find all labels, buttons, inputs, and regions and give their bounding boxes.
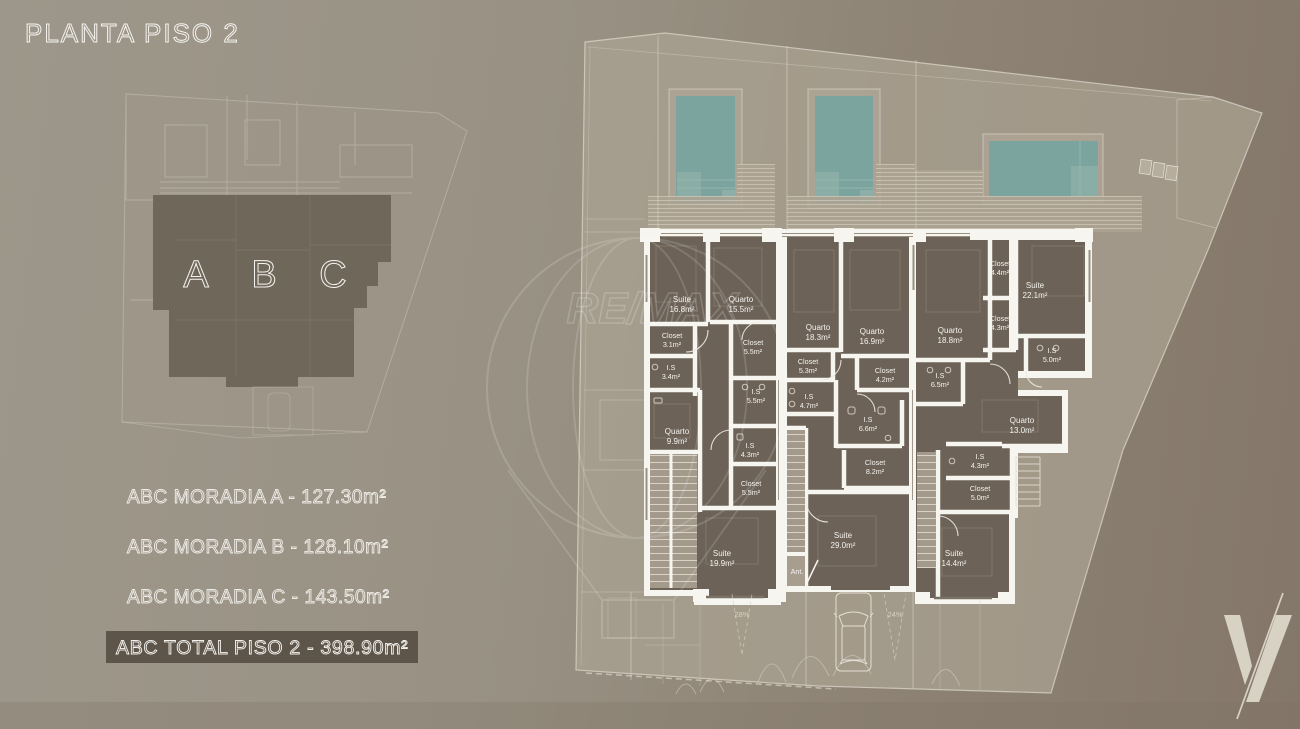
svg-text:I.S: I.S — [752, 387, 761, 396]
svg-text:4.7m²: 4.7m² — [800, 401, 819, 410]
svg-text:Quarto: Quarto — [806, 323, 831, 332]
svg-text:9.9m²: 9.9m² — [667, 437, 688, 446]
svg-text:4.4m²: 4.4m² — [991, 268, 1010, 277]
svg-text:24%: 24% — [887, 610, 902, 619]
svg-text:A: A — [183, 254, 209, 296]
svg-text:6.5m²: 6.5m² — [931, 380, 950, 389]
svg-text:4.3m²: 4.3m² — [741, 450, 760, 459]
svg-text:C: C — [319, 254, 346, 296]
svg-text:I.S: I.S — [746, 441, 755, 450]
svg-text:Quarto: Quarto — [860, 327, 885, 336]
svg-text:18.3m²: 18.3m² — [806, 333, 831, 342]
svg-text:Quarto: Quarto — [938, 326, 963, 335]
svg-text:Suite: Suite — [713, 549, 732, 558]
svg-text:I.S: I.S — [1048, 346, 1057, 355]
svg-text:28%: 28% — [734, 610, 749, 619]
svg-text:Closet: Closet — [990, 314, 1010, 323]
svg-text:22.1m²: 22.1m² — [1023, 291, 1048, 300]
svg-text:Closet: Closet — [798, 357, 818, 366]
svg-text:Closet: Closet — [865, 458, 885, 467]
svg-text:Suite: Suite — [945, 549, 964, 558]
svg-text:I.S: I.S — [864, 415, 873, 424]
svg-text:8.2m²: 8.2m² — [866, 467, 885, 476]
svg-text:3.4m²: 3.4m² — [662, 372, 681, 381]
svg-text:ABC TOTAL PISO 2 - 398.90m²: ABC TOTAL PISO 2 - 398.90m² — [116, 637, 408, 659]
svg-text:5.3m²: 5.3m² — [799, 366, 818, 375]
svg-text:ABC MORADIA A - 127.30m²: ABC MORADIA A - 127.30m² — [127, 487, 386, 508]
svg-text:4.3m²: 4.3m² — [991, 323, 1010, 332]
svg-text:5.5m²: 5.5m² — [747, 396, 766, 405]
svg-text:I.S: I.S — [936, 371, 945, 380]
svg-text:I.S: I.S — [667, 363, 676, 372]
svg-text:Closet: Closet — [970, 484, 990, 493]
svg-text:5.0m²: 5.0m² — [971, 493, 990, 502]
svg-text:ABC MORADIA B - 128.10m²: ABC MORADIA B - 128.10m² — [127, 537, 388, 558]
svg-text:I.S: I.S — [805, 392, 814, 401]
svg-text:Closet: Closet — [875, 366, 895, 375]
svg-text:Suite: Suite — [834, 531, 853, 540]
svg-text:19.9m²: 19.9m² — [710, 559, 735, 568]
svg-text:Ant.: Ant. — [791, 567, 804, 576]
svg-text:5.0m²: 5.0m² — [1043, 355, 1062, 364]
svg-text:RE/MAX: RE/MAX — [566, 284, 740, 333]
svg-text:13.0m²: 13.0m² — [1010, 426, 1035, 435]
svg-text:B: B — [251, 254, 276, 296]
svg-text:4.3m²: 4.3m² — [971, 461, 990, 470]
svg-text:14.4m²: 14.4m² — [942, 559, 967, 568]
svg-text:29.0m²: 29.0m² — [831, 541, 856, 550]
svg-text:5.5m²: 5.5m² — [744, 347, 763, 356]
svg-text:16.9m²: 16.9m² — [860, 337, 885, 346]
svg-text:Suite: Suite — [1026, 281, 1045, 290]
svg-text:Closet: Closet — [990, 259, 1010, 268]
svg-text:4.2m²: 4.2m² — [876, 375, 895, 384]
svg-text:Closet: Closet — [743, 338, 763, 347]
svg-text:PLANTA PISO 2: PLANTA PISO 2 — [25, 18, 240, 48]
svg-text:ABC MORADIA C - 143.50m²: ABC MORADIA C - 143.50m² — [127, 587, 390, 608]
svg-text:I.S: I.S — [976, 452, 985, 461]
svg-text:18.8m²: 18.8m² — [938, 336, 963, 345]
svg-text:Quarto: Quarto — [1010, 416, 1035, 425]
svg-text:3.1m²: 3.1m² — [663, 340, 682, 349]
svg-text:6.6m²: 6.6m² — [859, 424, 878, 433]
svg-text:Quarto: Quarto — [665, 427, 690, 436]
